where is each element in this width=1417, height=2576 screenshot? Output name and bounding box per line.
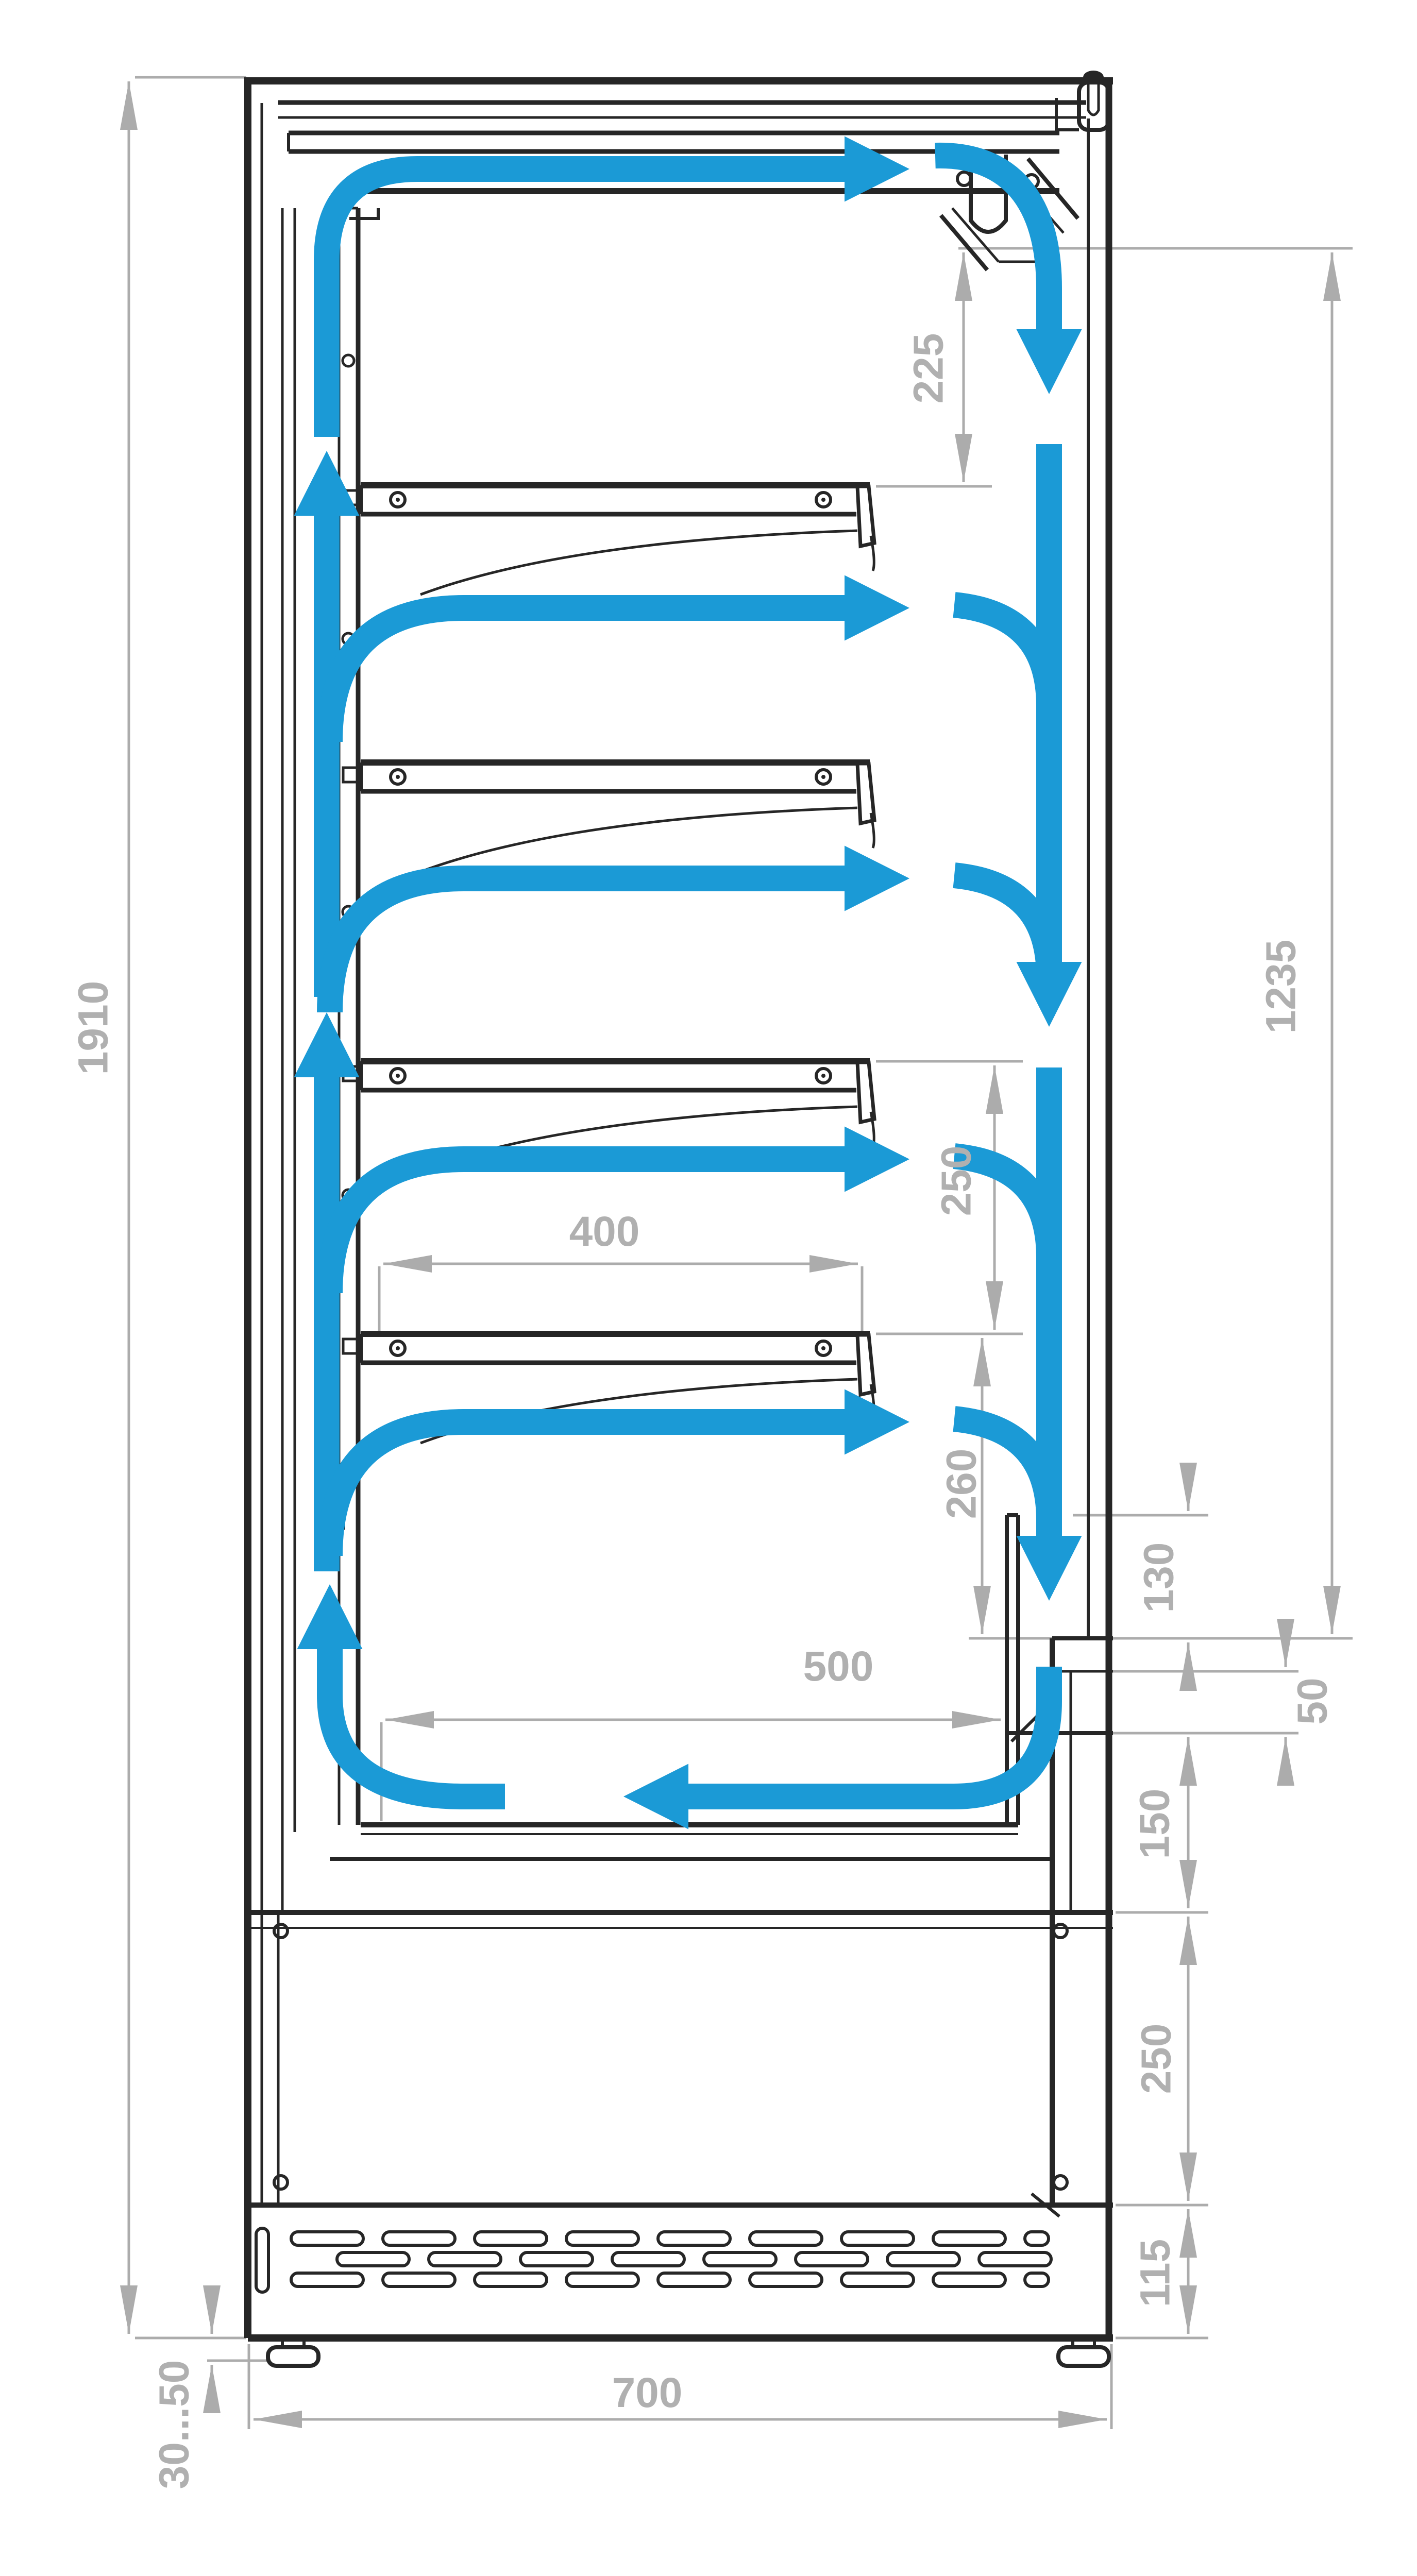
- dim-cabinet-depth: 700: [612, 2369, 683, 2416]
- dim-bottom-clearance: 260: [938, 1449, 985, 1519]
- shelf-1: [338, 485, 874, 681]
- airflow-shelf-jet-2: [330, 878, 845, 1012]
- dim-plinth-height: 115: [1132, 2239, 1179, 2307]
- dim-well-height: 150: [1132, 1789, 1178, 1859]
- bottom-well: [330, 1515, 1113, 2205]
- cabinet-structure: [244, 71, 1113, 2366]
- adjustable-feet: [268, 2338, 1109, 2366]
- dim-air-curtain-height: 1235: [1258, 940, 1305, 1033]
- dim-front-rim: 130: [1136, 1543, 1183, 1613]
- dim-shelf-depth: 400: [569, 1208, 640, 1255]
- shelves: [338, 485, 874, 1530]
- airflow-shelf-jet-1: [330, 608, 845, 742]
- cross-section-drawing: 1910 30...50 700 225 1235 400 250 260 50…: [0, 0, 1417, 2576]
- dim-machine-compartment: 250: [1133, 2024, 1180, 2094]
- front-frame: [1088, 81, 1109, 2338]
- airflow-shelf-jet-4: [330, 1422, 845, 1556]
- airflow-curtain-outlet-arrow: [935, 156, 1049, 330]
- diagram-refrigerated-cabinet: 1910 30...50 700 225 1235 400 250 260 50…: [0, 0, 1417, 2576]
- airflow-top-duct-arrow: [327, 169, 845, 437]
- airflow-curtain-branch-2: [954, 875, 1049, 976]
- dim-foot-height: 30...50: [151, 2360, 198, 2489]
- vent-grille: [248, 2228, 1113, 2338]
- shelf-2: [338, 762, 874, 958]
- machine-compartment: [248, 1912, 1113, 2216]
- dim-well-depth: 500: [803, 1643, 874, 1690]
- dim-shelf-spacing: 250: [933, 1146, 980, 1216]
- dim-top-clearance: 225: [905, 333, 952, 404]
- airflow-curtain-branch-1: [954, 605, 1049, 706]
- dim-overall-height: 1910: [70, 981, 117, 1075]
- dim-rim-gap: 50: [1289, 1677, 1336, 1724]
